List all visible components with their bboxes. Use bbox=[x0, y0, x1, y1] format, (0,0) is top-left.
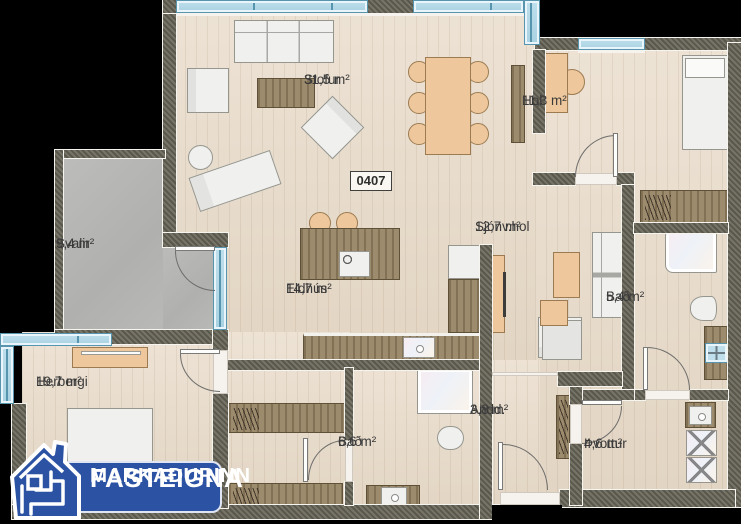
fridge bbox=[448, 245, 480, 279]
door-leaf bbox=[180, 349, 220, 354]
wardrobe bbox=[640, 190, 730, 223]
room-area: 11,3 m² bbox=[522, 93, 567, 110]
dresser bbox=[72, 347, 148, 368]
wall bbox=[533, 50, 545, 133]
window-sill bbox=[578, 50, 645, 53]
door-opening bbox=[645, 390, 690, 400]
room-area: 3,8 m² bbox=[470, 402, 508, 419]
entry-rug bbox=[542, 320, 582, 360]
dresser-top bbox=[81, 351, 141, 355]
room-area: 4,6 m² bbox=[584, 436, 622, 453]
coat-closet bbox=[556, 395, 570, 459]
door-leaf bbox=[582, 400, 622, 405]
logo-house-icon bbox=[6, 434, 86, 522]
room-area: 14,7 m² bbox=[286, 281, 332, 298]
window bbox=[176, 0, 368, 13]
window-sill bbox=[176, 13, 524, 16]
armchair-tan bbox=[553, 252, 580, 298]
unit-number: 0407 bbox=[350, 171, 392, 191]
bathtub bbox=[665, 228, 717, 273]
wall bbox=[163, 0, 176, 13]
dining-table bbox=[425, 57, 471, 155]
wall bbox=[634, 223, 728, 233]
door-leaf bbox=[175, 246, 215, 251]
room-area: 31,5 m² bbox=[304, 72, 350, 89]
room-area: 9,4 m² bbox=[56, 236, 94, 253]
tall-cabinet bbox=[448, 279, 480, 333]
wall bbox=[163, 0, 176, 240]
entrance-door-leaf bbox=[498, 442, 503, 490]
kitchen-sink bbox=[403, 337, 435, 358]
door-leaf bbox=[303, 438, 308, 482]
vanity-sink bbox=[705, 343, 728, 363]
balcony-door bbox=[213, 247, 227, 330]
toilet bbox=[437, 426, 464, 450]
closet-hatch bbox=[559, 400, 568, 454]
wall bbox=[558, 372, 622, 386]
pillow bbox=[685, 58, 725, 78]
wall bbox=[345, 368, 353, 440]
cooktop bbox=[339, 251, 370, 277]
wall bbox=[582, 390, 634, 400]
window bbox=[0, 346, 14, 404]
room-area: 12,7 m² bbox=[475, 219, 521, 236]
wall bbox=[55, 150, 165, 158]
sofa bbox=[234, 20, 334, 63]
wall bbox=[570, 444, 582, 505]
kitchen-counter bbox=[303, 333, 480, 361]
room-area: 5,4 m² bbox=[606, 289, 644, 306]
window bbox=[0, 333, 112, 346]
floor-plan: Stofur31,5 m² Hol11,3 m² Svalir9,4 m² El… bbox=[0, 0, 741, 524]
wall bbox=[368, 0, 413, 13]
single-bed bbox=[682, 55, 728, 150]
wall bbox=[345, 482, 353, 505]
tv bbox=[503, 272, 506, 317]
wardrobe bbox=[228, 403, 345, 433]
entry-bench bbox=[540, 300, 568, 326]
entrance-notch bbox=[492, 505, 562, 524]
wall bbox=[617, 173, 634, 185]
window bbox=[524, 0, 540, 45]
wall bbox=[570, 385, 582, 404]
toilet bbox=[690, 296, 717, 321]
wall bbox=[533, 173, 575, 185]
wall bbox=[634, 390, 645, 400]
door-leaf bbox=[643, 347, 648, 390]
dryer bbox=[686, 457, 717, 483]
bathtub bbox=[417, 368, 473, 414]
washing-machine bbox=[686, 430, 717, 456]
room-area: 19,7 m² bbox=[36, 374, 82, 391]
room-area: 6,6 m² bbox=[338, 434, 376, 451]
door-opening bbox=[500, 492, 560, 505]
wall bbox=[228, 360, 492, 370]
wall bbox=[213, 330, 228, 350]
wall bbox=[728, 43, 741, 507]
wall bbox=[690, 390, 728, 400]
side-table bbox=[188, 145, 213, 170]
armchair bbox=[187, 68, 229, 113]
window bbox=[578, 38, 645, 50]
passage-threshold bbox=[492, 372, 558, 376]
logo-line2: MARKAÐURINN bbox=[90, 466, 250, 486]
wardrobe-hatch bbox=[233, 408, 259, 430]
wall bbox=[560, 490, 735, 507]
window bbox=[413, 0, 524, 13]
bathroom-sink bbox=[381, 487, 407, 506]
wall bbox=[163, 233, 228, 247]
laundry-sink bbox=[689, 406, 712, 425]
wardrobe-hatch bbox=[645, 195, 671, 220]
door-leaf bbox=[613, 133, 618, 177]
wall bbox=[480, 245, 492, 519]
door-opening bbox=[570, 404, 582, 444]
